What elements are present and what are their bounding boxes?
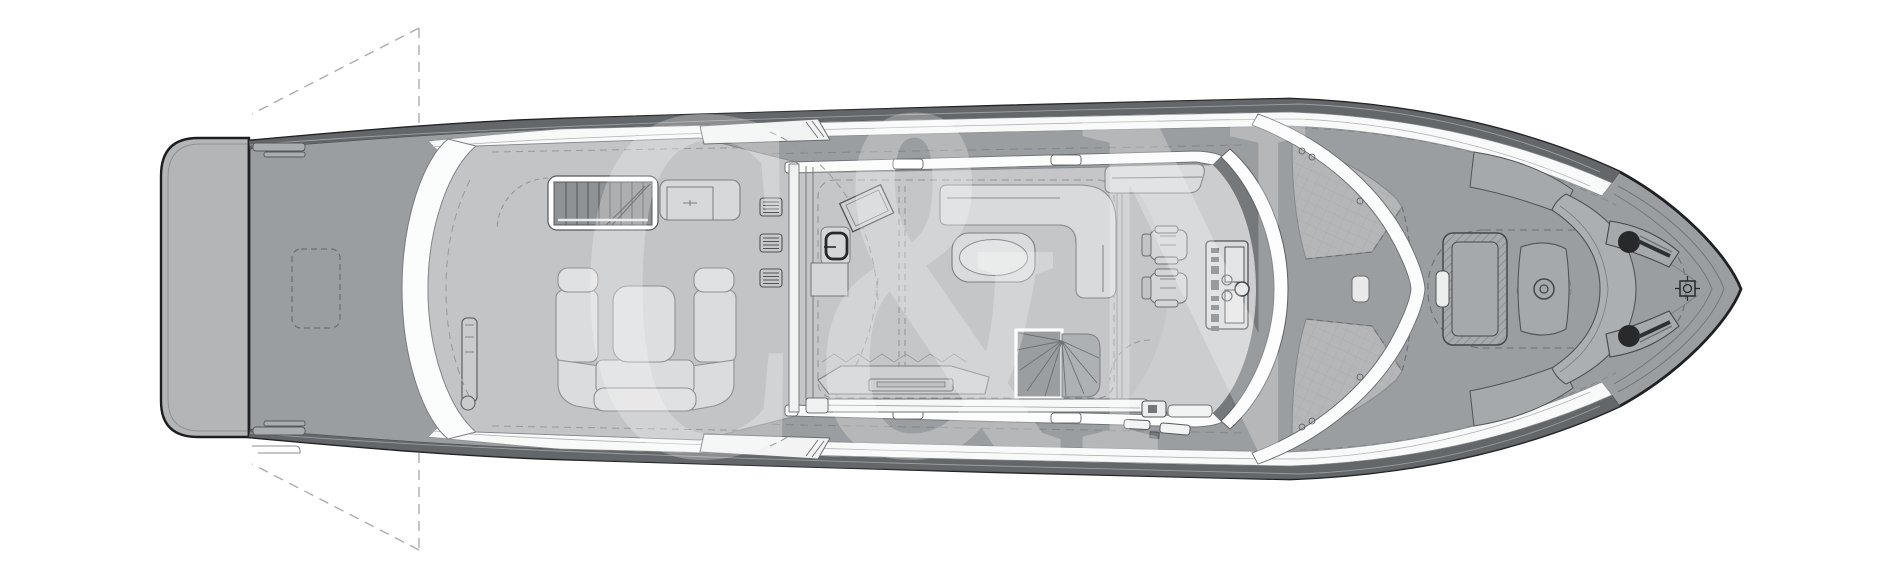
svg-text:C&N: C&N bbox=[575, 0, 1310, 567]
